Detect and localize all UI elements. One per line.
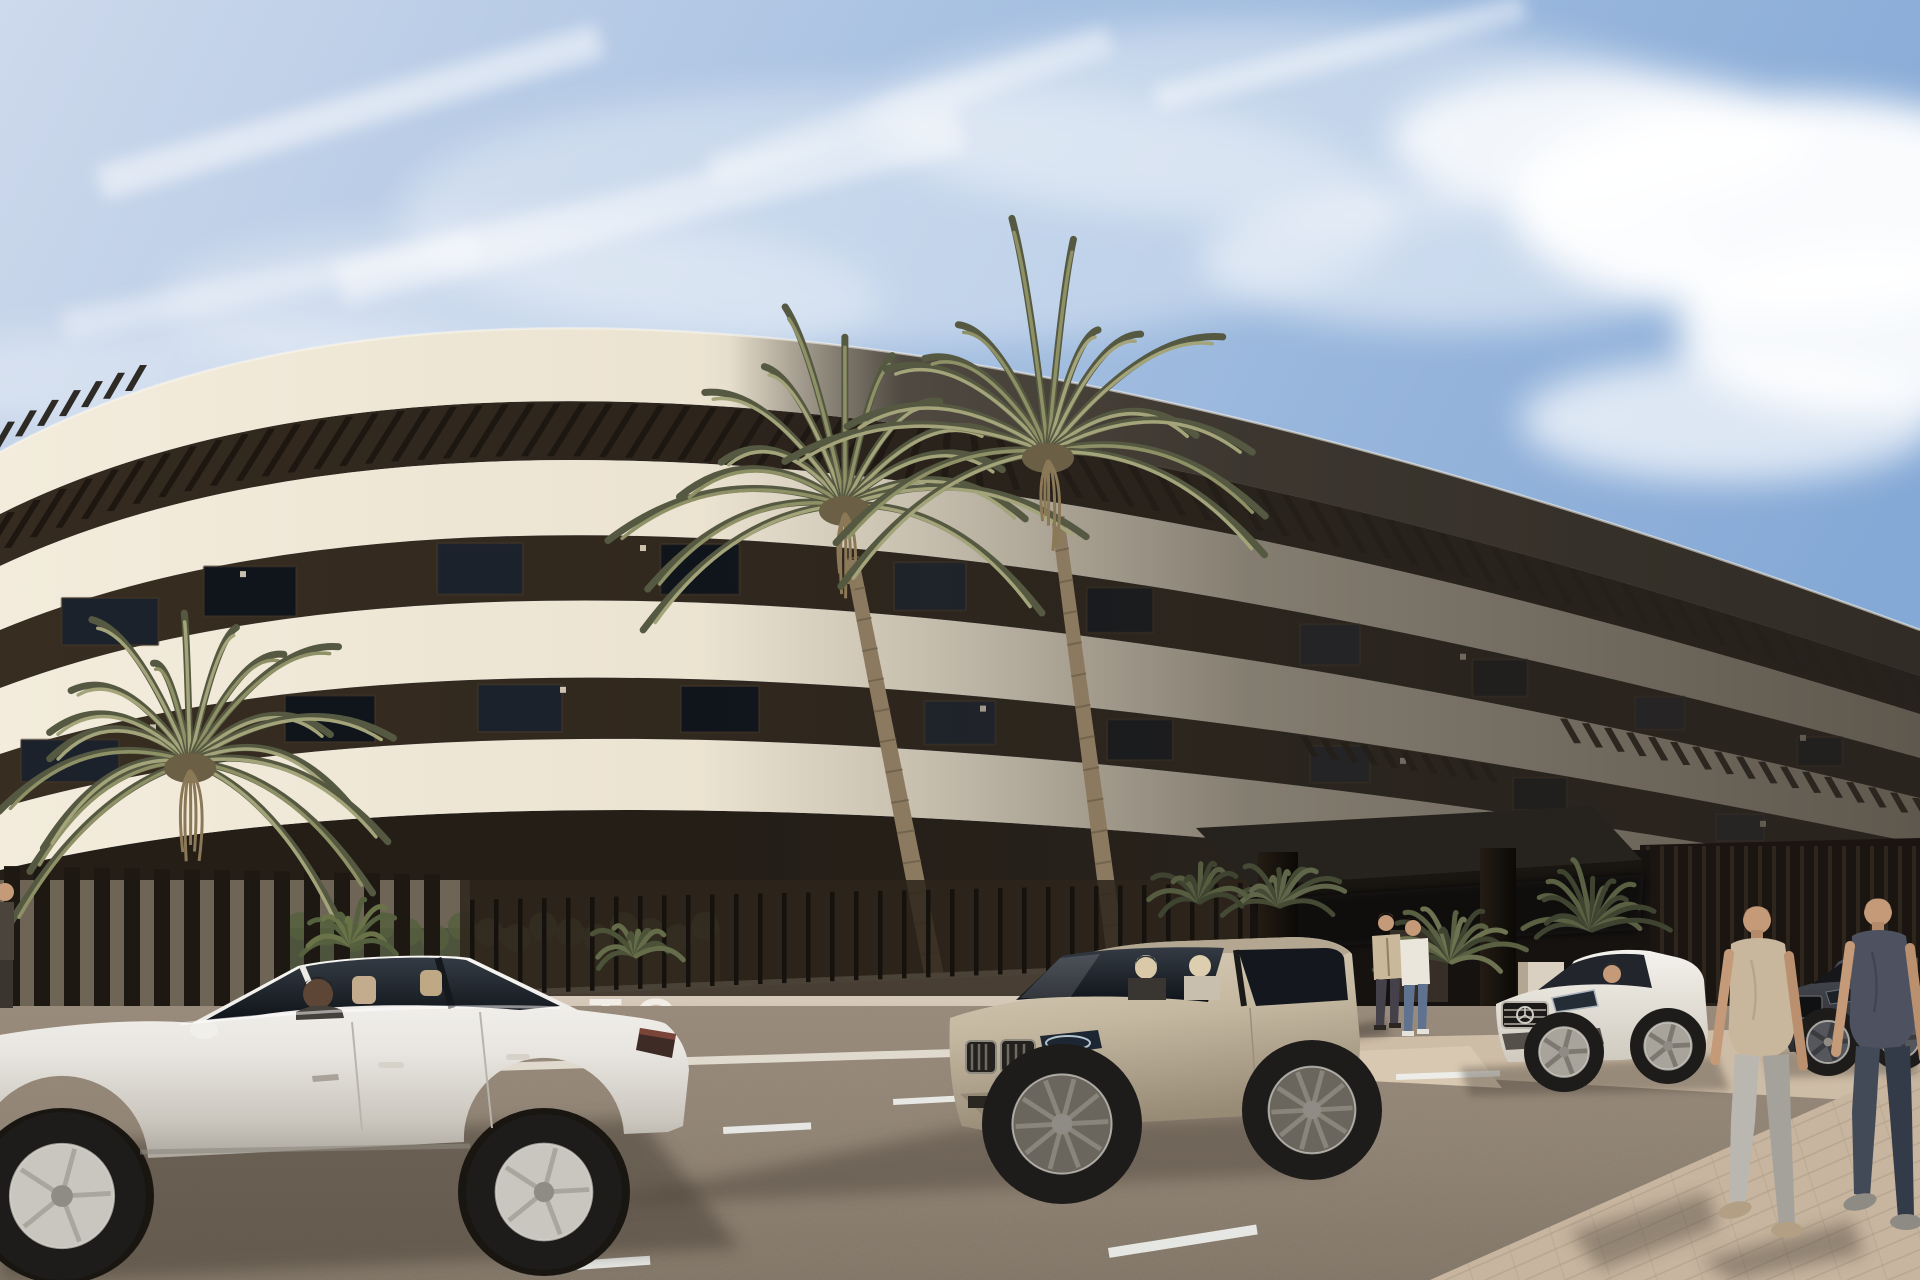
- head: [1743, 906, 1771, 934]
- hub-cap: [1303, 1101, 1321, 1119]
- railing-bar: [902, 890, 907, 978]
- driver-head: [1189, 955, 1211, 977]
- passenger-head: [1135, 957, 1157, 979]
- railing-bar: [878, 891, 883, 979]
- slat-line: [1716, 846, 1720, 1000]
- railing-bar: [518, 899, 523, 994]
- hub-cap: [51, 1185, 73, 1207]
- slat-line: [1814, 846, 1818, 1000]
- head: [1405, 920, 1421, 936]
- wall-light: [640, 545, 646, 551]
- door-handle: [506, 1054, 530, 1060]
- railing-bar: [998, 888, 1003, 974]
- sweater: [1400, 938, 1430, 986]
- shoe: [1417, 1029, 1429, 1034]
- railing-bar: [590, 897, 595, 991]
- shoe: [1402, 1031, 1414, 1036]
- fence-slat: [184, 870, 200, 1008]
- dead-frond: [1048, 460, 1049, 526]
- fence-slat: [214, 870, 230, 1008]
- driver-head: [303, 979, 333, 1009]
- window: [204, 566, 297, 616]
- railing-bar: [1022, 888, 1027, 974]
- railing-bar: [686, 895, 691, 987]
- railing-bar: [566, 898, 571, 992]
- railing-bar: [542, 898, 547, 993]
- hub-cap: [1663, 1041, 1673, 1051]
- hub-cap: [1824, 1038, 1833, 1047]
- window: [62, 598, 159, 645]
- render-image: TO: [0, 0, 1920, 1280]
- dead-frond: [190, 770, 191, 845]
- fence-slat: [154, 869, 170, 1008]
- railing-bar: [950, 889, 955, 976]
- seat-headrest: [352, 976, 376, 1004]
- fence-slat: [64, 867, 80, 1008]
- driver-head: [1603, 965, 1621, 983]
- head: [1864, 898, 1892, 926]
- fence-slat: [124, 868, 140, 1008]
- railing-bar: [830, 892, 835, 981]
- railing-bar: [806, 892, 811, 982]
- cloud: [1200, 190, 1720, 330]
- kidney-grille: [966, 1041, 996, 1073]
- shoe: [1771, 1222, 1803, 1238]
- shoe: [1389, 1023, 1401, 1028]
- side-glass: [1238, 948, 1348, 1006]
- slat-line: [1800, 846, 1804, 1000]
- head: [1378, 915, 1394, 931]
- railing-bar: [854, 891, 859, 980]
- hub-cap: [1559, 1047, 1569, 1057]
- door-handle: [378, 1062, 404, 1068]
- architectural-render-scene: TO: [0, 0, 1920, 1280]
- torso: [0, 902, 14, 960]
- shoe: [1374, 1025, 1386, 1030]
- passenger-torso: [1128, 978, 1166, 1000]
- railing-bar: [782, 893, 787, 983]
- railing-bar: [614, 897, 619, 990]
- cloud: [870, 20, 1710, 220]
- hub-cap: [534, 1182, 554, 1202]
- window: [437, 543, 523, 594]
- fence-slat: [244, 871, 260, 1008]
- railing-bar: [662, 896, 667, 988]
- railing-bar: [734, 894, 739, 985]
- hub-cap: [1052, 1114, 1073, 1135]
- railing-bar: [710, 895, 715, 987]
- wall-light: [240, 571, 246, 577]
- seat-headrest: [420, 970, 442, 996]
- railing-bar: [974, 889, 979, 976]
- fence-slat: [94, 868, 110, 1008]
- legs: [0, 960, 13, 1008]
- wall-light: [560, 687, 566, 693]
- window: [478, 684, 562, 731]
- railing-bar: [758, 893, 763, 984]
- driver-torso: [1184, 976, 1220, 1000]
- railing-bar: [1046, 887, 1051, 972]
- railing-bar: [926, 890, 931, 978]
